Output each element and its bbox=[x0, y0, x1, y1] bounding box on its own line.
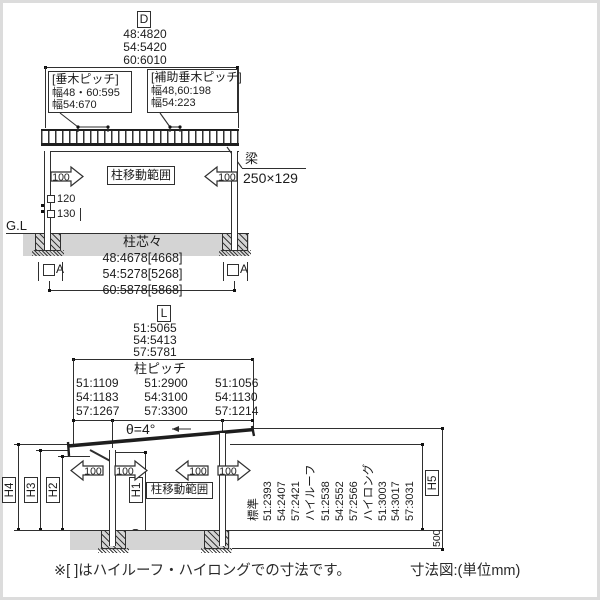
post-size-130: 130 bbox=[47, 208, 75, 221]
rafter-pitch-line1: 幅48・60:595 bbox=[52, 87, 128, 100]
rafter-pitch-note: [垂木ピッチ] 幅48・60:595 幅54:670 bbox=[48, 71, 132, 113]
rear-dim-57: 57:1267 bbox=[76, 405, 119, 419]
mid-dim-57: 57:3300 bbox=[139, 405, 193, 419]
post-size-120: 120 bbox=[47, 193, 75, 206]
arrow-value: 100 bbox=[189, 466, 207, 478]
move-arrow-left-icon: 100 bbox=[70, 460, 104, 481]
move-arrow-right-icon: 100 bbox=[217, 460, 251, 481]
aux-rafter-pitch-note: [補助垂木ピッチ] 幅48,60:198 幅54:223 bbox=[147, 69, 238, 113]
anchor-label-right: A bbox=[240, 263, 248, 277]
arrow-value: 100 bbox=[52, 172, 70, 184]
square-icon bbox=[47, 210, 55, 218]
aux-rafter-pitch-line1: 幅48,60:198 bbox=[151, 85, 234, 98]
rear-dim-51: 51:1109 bbox=[76, 377, 119, 391]
square-icon bbox=[47, 195, 55, 203]
overall-dim-side-57: 57:5781 bbox=[105, 346, 205, 360]
rear-dim-54: 54:1183 bbox=[76, 391, 119, 405]
post-size-120-text: 120 bbox=[57, 193, 75, 205]
aux-rafter-pitch-line2: 幅54:223 bbox=[151, 97, 234, 110]
anchor-square-right bbox=[227, 264, 239, 276]
move-arrow-right-icon: 100 bbox=[114, 460, 148, 481]
axis-label-l: L bbox=[157, 305, 171, 322]
roof-rear-cap bbox=[68, 442, 69, 456]
roof-angle-label: θ=4° bbox=[126, 421, 155, 437]
rafter-pitch-title: [垂木ピッチ] bbox=[52, 73, 128, 87]
arrow-value: 100 bbox=[116, 466, 134, 478]
span-dim-48: 48:4678[4668] bbox=[60, 251, 225, 265]
arrow-value: 100 bbox=[84, 466, 102, 478]
span-title: 柱芯々 bbox=[60, 235, 225, 250]
move-range-label-side: 柱移動範囲 bbox=[146, 482, 213, 499]
overall-dim-front-60: 60:6010 bbox=[95, 54, 195, 68]
post-size-130-text: 130 bbox=[57, 208, 75, 220]
move-range-label-front: 柱移動範囲 bbox=[107, 166, 175, 185]
sloped-roof-line bbox=[68, 430, 254, 447]
axis-label-l-text: L bbox=[161, 306, 168, 320]
mid-dim-54: 54:3100 bbox=[139, 391, 193, 405]
axis-label-d: D bbox=[137, 11, 151, 28]
span-dim-54: 54:5278[5268] bbox=[60, 267, 225, 281]
move-arrow-right-icon: 100 bbox=[50, 166, 84, 187]
drawing-caption: 寸法図:(単位mm) bbox=[410, 563, 520, 580]
aux-rafter-leader-line bbox=[160, 113, 170, 127]
dimension-drawing: G.L D 48:4820 54:5420 60:6010 [垂木ピッチ] 幅4… bbox=[0, 0, 600, 600]
rafter-leader-line bbox=[60, 113, 78, 127]
span-dim-60: 60:5878[5868] bbox=[60, 283, 225, 297]
arrow-value: 100 bbox=[219, 466, 237, 478]
footnote: ※[ ]はハイルーフ・ハイロングでの寸法です。 bbox=[54, 563, 351, 580]
move-arrow-left-icon: 100 bbox=[175, 460, 209, 481]
anchor-label-left: A bbox=[56, 263, 64, 277]
roof-front-cap bbox=[252, 426, 254, 436]
move-arrow-left-icon: 100 bbox=[204, 166, 238, 187]
move-range-label-front-text: 柱移動範囲 bbox=[111, 168, 171, 182]
theta-arrowhead-icon bbox=[172, 426, 179, 432]
aux-rafter-pitch-title: [補助垂木ピッチ] bbox=[151, 71, 234, 85]
pitch-title: 柱ピッチ bbox=[110, 362, 210, 377]
post-side-front bbox=[219, 433, 226, 546]
rafter-pitch-line2: 幅54:670 bbox=[52, 99, 128, 112]
mid-dim-51: 51:2900 bbox=[139, 377, 193, 391]
front-dim-57: 57:1214 bbox=[215, 405, 258, 419]
axis-label-d-text: D bbox=[140, 12, 149, 26]
front-dim-51: 51:1056 bbox=[215, 377, 258, 391]
arrow-value: 100 bbox=[218, 172, 236, 184]
front-dim-54: 54:1130 bbox=[215, 391, 258, 405]
move-range-label-side-text: 柱移動範囲 bbox=[151, 484, 209, 496]
anchor-square-left bbox=[43, 264, 55, 276]
